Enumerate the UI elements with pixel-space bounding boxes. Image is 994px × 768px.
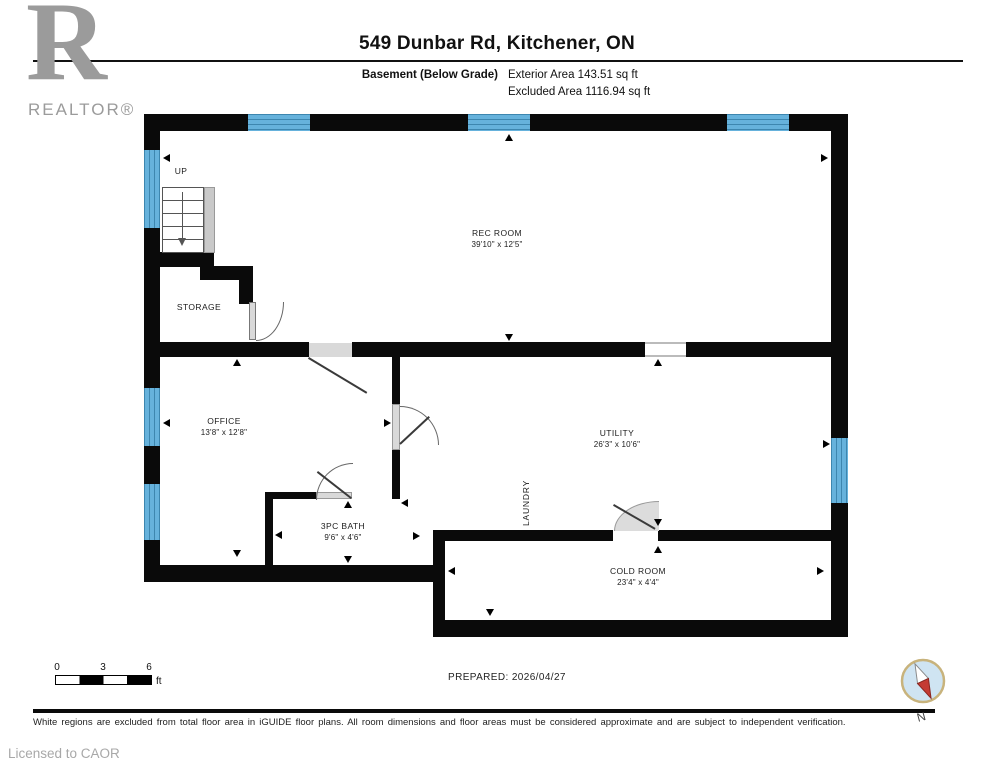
bath-dim-arrow-right-icon xyxy=(413,532,420,540)
licensed-to-text: Licensed to CAOR xyxy=(8,746,120,761)
realtor-logo-icon: R xyxy=(26,0,107,98)
window-right-1 xyxy=(831,438,848,503)
scale-tick-0: 0 xyxy=(51,662,63,673)
exterior-area-value: Exterior Area 143.51 sq ft xyxy=(508,69,638,81)
floor-label: Basement (Below Grade) xyxy=(230,69,498,81)
scale-bar xyxy=(55,675,152,685)
bath-dim-arrow-up-icon xyxy=(344,501,352,508)
stairs-direction-line xyxy=(182,192,183,238)
window-top-1 xyxy=(248,114,310,131)
wall-mid-b xyxy=(352,342,645,357)
rec-office-door-leaf xyxy=(308,357,367,394)
room-name: STORAGE xyxy=(149,302,249,313)
stairs-up-label: UP xyxy=(165,166,197,177)
cold-dim-arrow-down-icon xyxy=(486,609,494,616)
room-dims: 9'6" x 4'6" xyxy=(273,532,413,543)
room-name: COLD ROOM xyxy=(568,566,708,577)
window-left-3 xyxy=(144,484,160,540)
cold-door-opening xyxy=(613,530,658,541)
rec-dim-arrow-up-icon xyxy=(505,134,513,141)
wall-cold-bottom xyxy=(433,620,848,637)
prepared-date: PREPARED: 2026/04/27 xyxy=(448,672,566,683)
office-dim-arrow-right-icon xyxy=(384,419,391,427)
room-dims: 13'8" x 12'8" xyxy=(154,427,294,438)
scale-tick-6: 6 xyxy=(143,662,155,673)
utility-dim-arrow-up-icon xyxy=(654,359,662,366)
scale-unit-label: ft xyxy=(156,676,162,687)
window-top-2 xyxy=(468,114,530,131)
wall-storage-right xyxy=(239,280,253,304)
compass-icon: N xyxy=(895,653,951,725)
room-name: REC ROOM xyxy=(397,228,597,239)
storage-door-arc xyxy=(256,302,284,341)
room-name: UP xyxy=(165,166,197,177)
stairs-direction-arrow-icon xyxy=(178,238,186,246)
scale-tick-3: 3 xyxy=(97,662,109,673)
room-name: 3PC BATH xyxy=(273,521,413,532)
wall-utility-bottom-a xyxy=(433,530,613,541)
storage-door-leaf xyxy=(249,302,256,340)
wall-bottom-left-block xyxy=(144,565,445,582)
cold-dim-arrow-up-icon xyxy=(654,546,662,553)
wall-storage-top xyxy=(200,266,253,280)
rec-dim-arrow-right-icon xyxy=(821,154,828,162)
excluded-area-value: Excluded Area 1116.94 sq ft xyxy=(508,86,650,98)
title-divider xyxy=(33,60,963,62)
wall-mid-a xyxy=(144,342,309,357)
wall-right xyxy=(831,114,848,637)
utility-dim-arrow-down-icon xyxy=(654,519,662,526)
room-label-utility: UTILITY 26'3" x 10'6" xyxy=(547,428,687,450)
room-label-bath: 3PC BATH 9'6" x 4'6" xyxy=(273,521,413,543)
room-dims: 39'10" x 12'5" xyxy=(397,239,597,250)
room-name: UTILITY xyxy=(547,428,687,439)
wall-mid-c xyxy=(686,342,848,357)
cold-dim-arrow-left-icon xyxy=(448,567,455,575)
utility-dim-arrow-left-icon xyxy=(401,499,408,507)
room-name: OFFICE xyxy=(154,416,294,427)
office-dim-arrow-up-icon xyxy=(233,359,241,366)
window-top-3 xyxy=(727,114,789,131)
wall-bath-left xyxy=(265,492,273,582)
room-label-cold: COLD ROOM 23'4" x 4'4" xyxy=(568,566,708,588)
room-label-rec: REC ROOM 39'10" x 12'5" xyxy=(397,228,597,250)
disclaimer-text: White regions are excluded from total fl… xyxy=(33,717,967,728)
rec-utility-opening xyxy=(645,342,686,357)
office-dim-arrow-down-icon xyxy=(233,550,241,557)
rec-dim-arrow-down-icon xyxy=(505,334,513,341)
rec-dim-arrow-left-icon xyxy=(163,154,170,162)
rec-office-door-sill xyxy=(309,343,352,357)
wall-utility-bottom-b xyxy=(658,530,848,541)
room-label-office: OFFICE 13'8" x 12'8" xyxy=(154,416,294,438)
wall-office-utility-top xyxy=(392,357,400,404)
compass-north-label: N xyxy=(915,709,927,725)
room-dims: 26'3" x 10'6" xyxy=(547,439,687,450)
window-left-1 xyxy=(144,150,160,228)
floorplan-page: R REALTOR® 549 Dunbar Rd, Kitchener, ON … xyxy=(0,0,994,768)
bath-dim-arrow-down-icon xyxy=(344,556,352,563)
cold-dim-arrow-right-icon xyxy=(817,567,824,575)
utility-dim-arrow-right-icon xyxy=(823,440,830,448)
page-title: 549 Dunbar Rd, Kitchener, ON xyxy=(0,33,994,55)
room-label-laundry: LAUNDRY xyxy=(521,454,531,526)
room-dims: 23'4" x 4'4" xyxy=(568,577,708,588)
footer-divider xyxy=(33,709,935,713)
wall-office-utility-bottom xyxy=(392,450,400,499)
room-label-storage: STORAGE xyxy=(149,302,249,313)
wall-stairs-bottom xyxy=(144,252,214,267)
realtor-logo-text: REALTOR® xyxy=(28,100,135,120)
stairs-side-rail xyxy=(204,187,215,253)
